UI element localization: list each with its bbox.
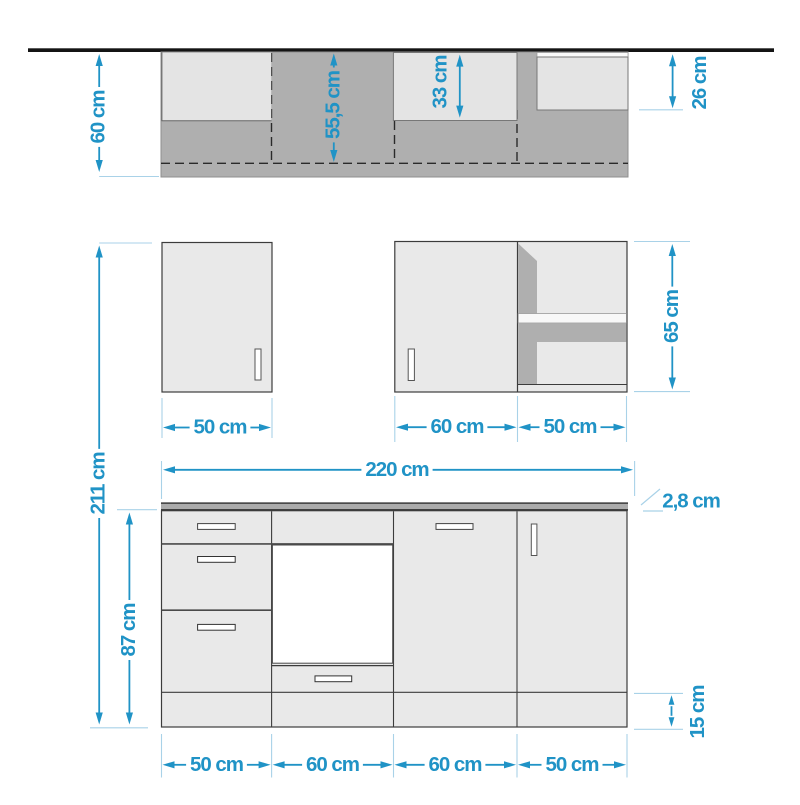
svg-text:60 cm: 60 cm: [306, 753, 359, 776]
svg-text:60 cm: 60 cm: [429, 753, 482, 776]
svg-text:2,8 cm: 2,8 cm: [662, 490, 720, 513]
svg-text:60 cm: 60 cm: [431, 415, 484, 438]
svg-text:26 cm: 26 cm: [688, 57, 711, 110]
svg-text:55,5 cm: 55,5 cm: [321, 71, 344, 139]
svg-text:60 cm: 60 cm: [87, 91, 110, 144]
svg-text:15 cm: 15 cm: [686, 686, 709, 739]
svg-text:50 cm: 50 cm: [194, 416, 247, 439]
svg-text:220 cm: 220 cm: [365, 458, 428, 481]
svg-text:211 cm: 211 cm: [87, 452, 110, 514]
svg-text:50 cm: 50 cm: [190, 753, 243, 776]
svg-text:50 cm: 50 cm: [544, 415, 597, 438]
svg-text:50 cm: 50 cm: [546, 753, 599, 776]
svg-text:33 cm: 33 cm: [429, 56, 452, 109]
svg-text:65 cm: 65 cm: [660, 290, 683, 343]
svg-text:87 cm: 87 cm: [117, 604, 140, 657]
